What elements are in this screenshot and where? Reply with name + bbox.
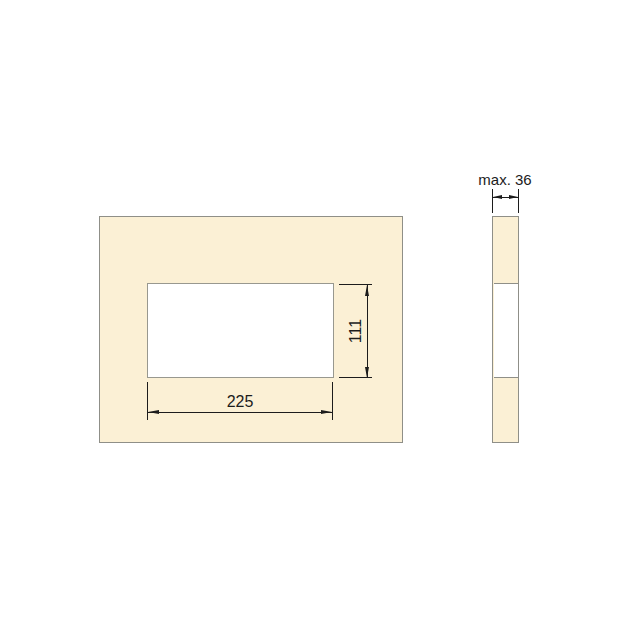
extension-line-left [147, 382, 148, 420]
width-dimension-label: 225 [190, 393, 290, 411]
arrowhead-left-icon [148, 410, 159, 414]
side-view-recess-band [494, 283, 518, 378]
extension-line-left [492, 189, 493, 213]
dimension-line [367, 285, 368, 378]
arrowhead-left-icon [493, 195, 502, 199]
arrowhead-right-icon [509, 195, 518, 199]
front-view-cutout [147, 283, 334, 378]
technical-drawing: 225 111 max. 36 [0, 0, 630, 630]
arrowhead-up-icon [365, 285, 369, 296]
arrowhead-down-icon [365, 367, 369, 378]
dimension-line [148, 412, 332, 413]
extension-line-right [518, 189, 519, 213]
height-dimension-label: 111 [347, 301, 365, 361]
arrowhead-right-icon [321, 410, 332, 414]
extension-line-right [332, 382, 333, 420]
thickness-dimension-label: max. 36 [465, 171, 545, 189]
